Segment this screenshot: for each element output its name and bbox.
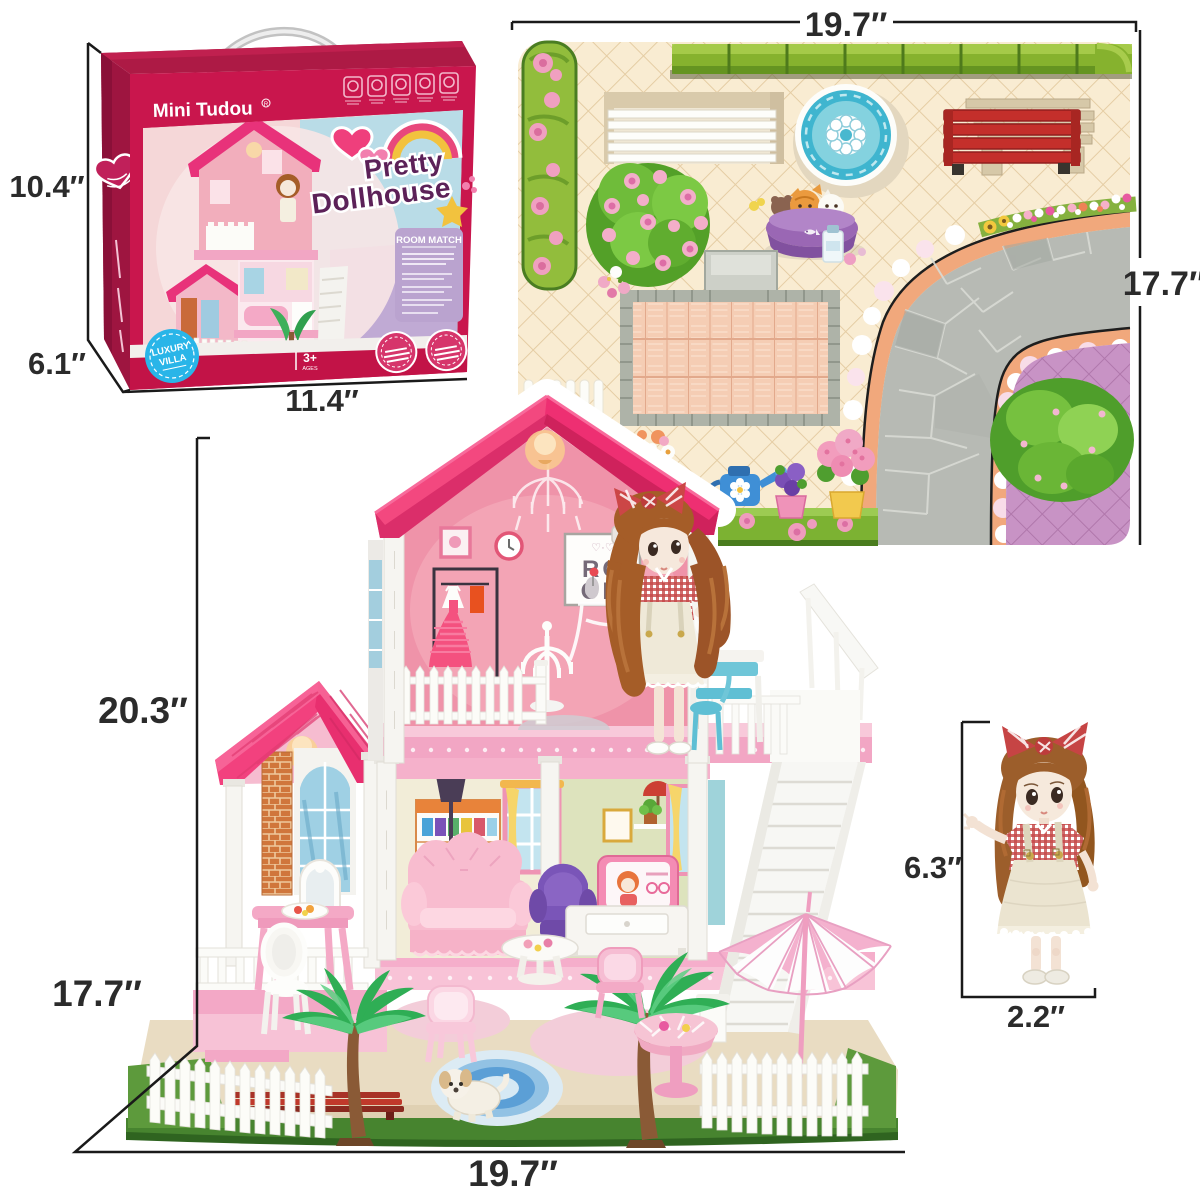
- svg-text:Mini Tudou: Mini Tudou: [153, 98, 253, 122]
- svg-text:3+: 3+: [303, 351, 317, 365]
- svg-text:10.4″: 10.4″: [9, 169, 84, 204]
- svg-text:R: R: [264, 102, 269, 108]
- svg-text:19.7″: 19.7″: [468, 1153, 558, 1194]
- svg-text:17.7″: 17.7″: [52, 973, 142, 1014]
- svg-text:6.3″: 6.3″: [904, 850, 962, 885]
- svg-text:17.7″: 17.7″: [1123, 265, 1200, 303]
- svg-text:20.3″: 20.3″: [98, 690, 188, 731]
- svg-text:ROOM MATCH: ROOM MATCH: [396, 235, 462, 246]
- svg-text:2.2″: 2.2″: [1007, 999, 1065, 1034]
- svg-text:♡·♡: ♡·♡: [591, 542, 614, 554]
- svg-text:6.1″: 6.1″: [28, 346, 86, 381]
- svg-text:19.7″: 19.7″: [805, 6, 887, 44]
- svg-text:AGES: AGES: [302, 366, 318, 372]
- svg-text:11.4″: 11.4″: [285, 383, 359, 418]
